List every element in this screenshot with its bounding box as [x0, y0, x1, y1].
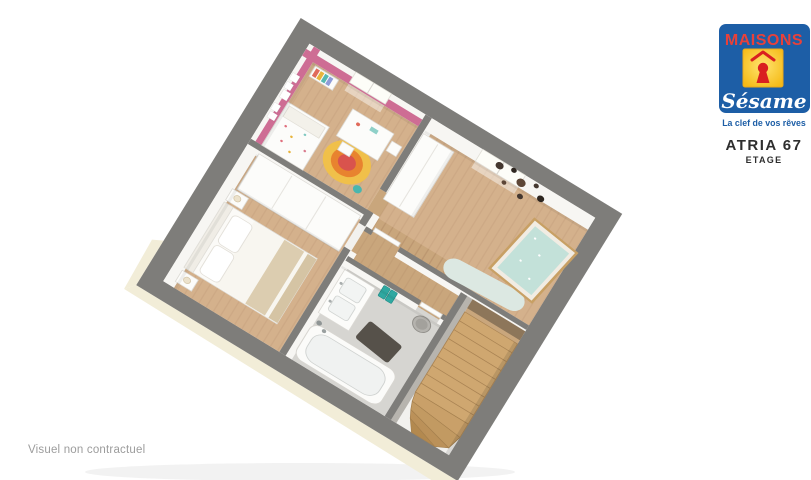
logo-name-text: MAISONS: [725, 32, 803, 49]
floorplan-group: [120, 13, 622, 480]
logo-tagline: La clef de vos rêves: [722, 118, 806, 128]
floorplan-3d: [0, 0, 811, 480]
plan-title: ATRIA 67: [725, 137, 802, 154]
page: MAISONS Sésame La clef de vos rêves ATRI…: [0, 0, 811, 480]
brand-block: MAISONS Sésame La clef de vos rêves ATRI…: [700, 15, 811, 175]
disclaimer-text: Visuel non contractuel: [28, 444, 145, 456]
maisons-sesame-logo: MAISONS Sésame La clef de vos rêves ATRI…: [719, 24, 810, 165]
plan-subtitle: ETAGE: [746, 155, 783, 165]
logo-script-text: Sésame: [721, 89, 806, 113]
